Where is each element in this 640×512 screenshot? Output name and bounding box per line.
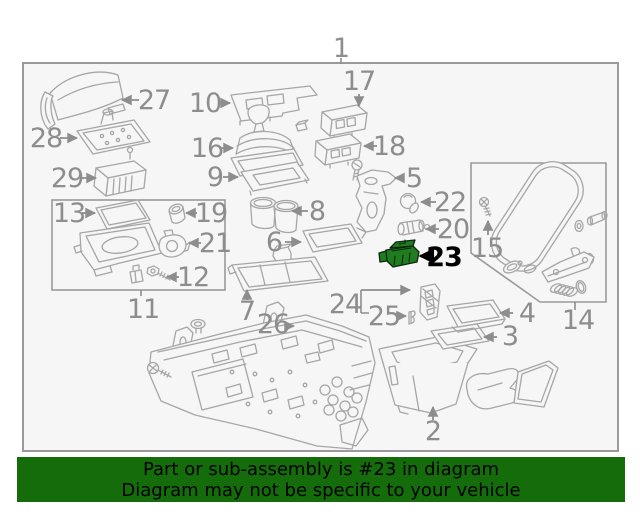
banner-line-2: Diagram may not be specific to your vehi… — [121, 480, 520, 501]
callout-24: 24 — [329, 289, 361, 320]
callout-9: 9 — [207, 162, 223, 193]
parts-diagram-page: 1 27 28 29 13 19 21 12 11 10 16 9 8 6 17… — [0, 0, 640, 512]
callout-18: 18 — [373, 131, 405, 162]
callout-14: 14 — [562, 305, 594, 336]
callout-8: 8 — [309, 196, 325, 227]
callout-6: 6 — [266, 227, 282, 258]
part-24-hinge-bracket — [420, 284, 440, 320]
callout-5: 5 — [406, 163, 422, 194]
callout-21: 21 — [199, 228, 231, 259]
callout-16: 16 — [191, 133, 223, 164]
callout-19: 19 — [195, 198, 227, 229]
callout-26: 26 — [257, 309, 289, 340]
callout-17: 17 — [343, 66, 375, 97]
callout-11: 11 — [127, 294, 159, 325]
callout-15: 15 — [471, 233, 503, 264]
callout-29: 29 — [51, 163, 83, 194]
callout-20: 20 — [437, 214, 469, 245]
callout-10: 10 — [189, 88, 221, 119]
callout-4: 4 — [519, 298, 535, 329]
callout-28: 28 — [30, 123, 62, 154]
callout-1: 1 — [333, 33, 349, 64]
callout-13: 13 — [53, 198, 85, 229]
callout-3: 3 — [502, 321, 518, 352]
callout-23-highlighted: 23 — [426, 242, 462, 273]
callout-27: 27 — [138, 85, 170, 116]
exploded-parts-diagram: 1 27 28 29 13 19 21 12 11 10 16 9 8 6 17… — [0, 0, 640, 512]
banner-line-1: Part or sub-assembly is #23 in diagram — [143, 459, 499, 480]
callout-25: 25 — [368, 301, 400, 332]
callout-2: 2 — [425, 416, 441, 447]
callout-7: 7 — [239, 296, 255, 327]
highlight-banner: Part or sub-assembly is #23 in diagram D… — [17, 457, 625, 502]
callout-12: 12 — [177, 262, 209, 293]
